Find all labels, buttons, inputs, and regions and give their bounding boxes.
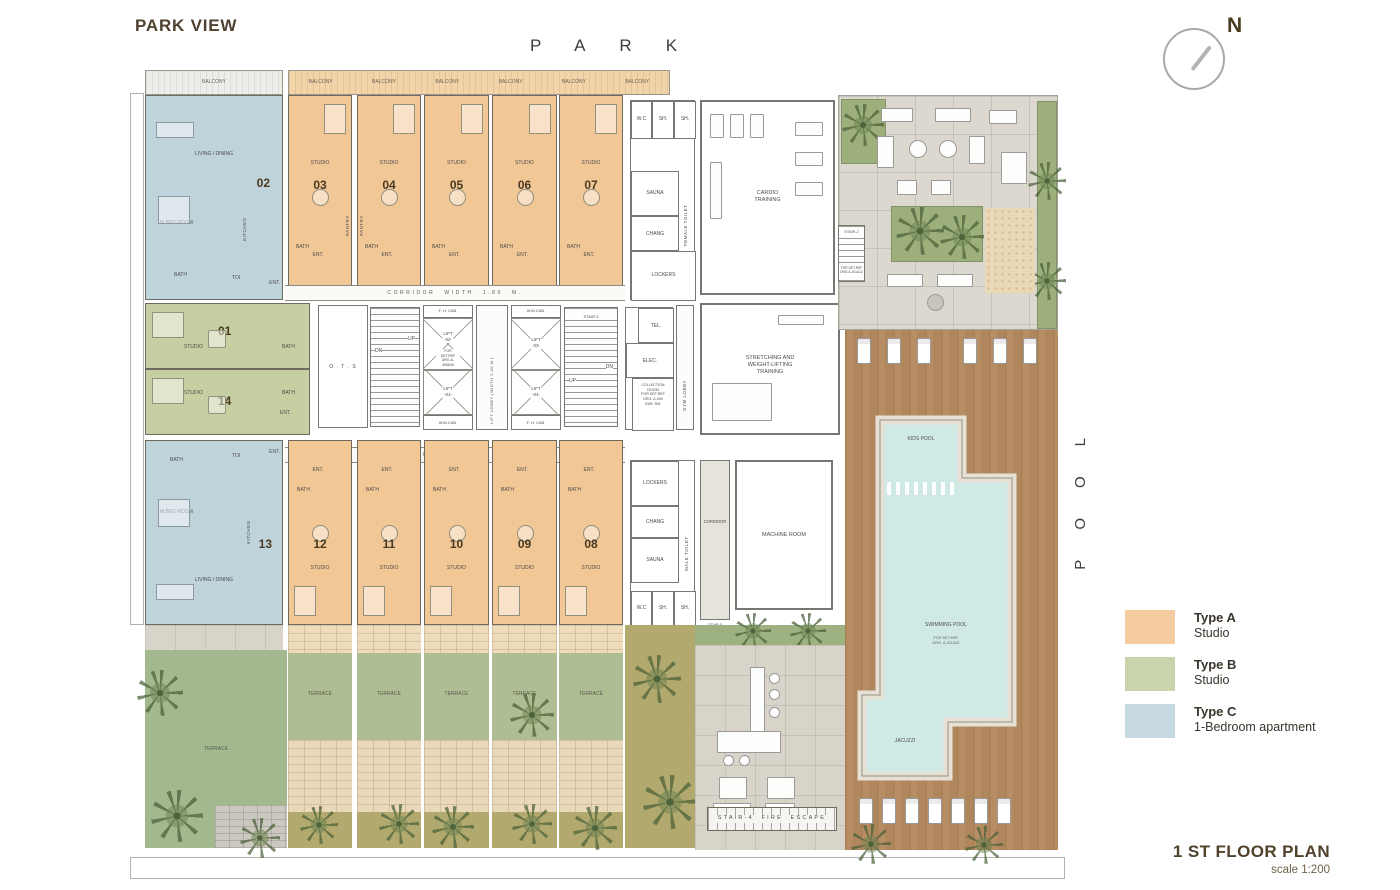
- palm-tree: [633, 655, 681, 703]
- courtyard: STAIR-4 FIRE ESCAPE: [695, 625, 845, 850]
- bath-label: BATH: [567, 244, 580, 251]
- lounger: [859, 798, 873, 824]
- drawing-scale: scale 1:200: [1075, 864, 1330, 876]
- unit-number: 14: [218, 394, 231, 408]
- bar-stool: [739, 755, 750, 766]
- terrace-label: TERRACE: [357, 691, 421, 698]
- balcony-label: BALCONY: [562, 79, 586, 86]
- balcony-label: BALCONY: [625, 79, 649, 86]
- outdoor-sofa: [881, 108, 913, 122]
- unit-number: 09: [493, 537, 556, 551]
- ent-label: ENT.: [517, 252, 528, 259]
- wc-label: W.C: [632, 605, 651, 612]
- machine-room-label: MACHINE ROOM: [737, 532, 831, 539]
- outdoor-seat: [887, 274, 923, 287]
- legend-type-desc: Studio: [1194, 626, 1236, 640]
- wc-room: W.C: [631, 591, 652, 626]
- outdoor-seat: [931, 180, 951, 195]
- planter: [891, 206, 983, 262]
- wc-label: W.C: [632, 116, 651, 123]
- lounger: [928, 798, 942, 824]
- legend-swatch-type-c: [1125, 704, 1175, 738]
- bedroom-label: M.BED ROOM: [160, 509, 193, 516]
- cardio-training-room: CARDIO TRAINING: [700, 100, 835, 295]
- legend-type-desc: Studio: [1194, 673, 1236, 687]
- palm-tree: [851, 824, 891, 864]
- stair-1: DN UP: [370, 307, 420, 427]
- shower-label: SH.: [653, 116, 673, 123]
- palm-tree: [735, 613, 771, 649]
- wellness-block-bottom: LOCKERS CHANG SAUNA MALE TOILET W.C SH. …: [630, 460, 695, 625]
- ent-label: ENT.: [449, 467, 460, 474]
- planting-band: [357, 812, 421, 848]
- room-label: STUDIO: [560, 160, 622, 167]
- balcony-label: BALCONY: [499, 79, 523, 86]
- corridor-label: CORRIDOR: [701, 519, 729, 524]
- shower-room: SH.: [674, 101, 696, 139]
- up-label: UP: [569, 378, 576, 385]
- bath-label: BATH: [501, 487, 514, 494]
- ent-label: ENT.: [382, 252, 393, 259]
- page-title: PARK VIEW: [135, 16, 237, 36]
- terrace-label: TERRACE: [145, 746, 287, 753]
- planting-block: [625, 625, 695, 848]
- bath-label: BATH: [174, 272, 187, 279]
- terrace-top-right: [838, 95, 1058, 330]
- bath-label: BATH: [433, 487, 446, 494]
- unit-number: 07: [560, 178, 622, 192]
- fhcab-label: F. H. CAB.: [512, 420, 560, 425]
- changing-room: CHANG: [631, 216, 679, 251]
- gym-equipment: [750, 114, 764, 138]
- outdoor-sofa: [1001, 152, 1027, 184]
- room-label: STUDIO: [358, 160, 420, 167]
- planting-band: [424, 812, 489, 848]
- terrace-lawn: TERRACE: [357, 653, 421, 740]
- planting-band: [288, 812, 352, 848]
- room-label: STUDIO: [289, 160, 351, 167]
- unit-number: 06: [493, 178, 556, 192]
- park-label: PARK: [530, 36, 711, 56]
- unit-number: 12: [289, 537, 351, 551]
- paving-strip: [145, 625, 283, 650]
- room-label: STUDIO: [358, 565, 420, 572]
- unit-number: 01: [218, 324, 231, 338]
- terrace-lawn: TERRACE: [424, 653, 489, 740]
- lift-label: LIFT -01-: [442, 386, 453, 398]
- stair2-label: STAIR-2: [839, 230, 864, 235]
- male-toilet-label: MALE TOILET: [684, 486, 689, 571]
- terrace-access: [492, 625, 557, 653]
- legend-type-name: Type C: [1194, 704, 1316, 720]
- pool-shape: [845, 330, 1058, 850]
- outdoor-chair: [939, 140, 957, 158]
- room-label: STUDIO: [425, 565, 488, 572]
- ent-label: ENT.: [517, 467, 528, 474]
- wmcab-label: W.M.CAB.: [424, 420, 472, 425]
- palm-tree: [512, 804, 552, 844]
- bath-label: BATH: [432, 244, 445, 251]
- lift-label: LIFT -04-: [530, 386, 541, 398]
- palm-tree: [510, 693, 554, 737]
- bedroom-label: M.BED ROOM: [160, 220, 193, 227]
- unit-01: STUDIO 01 BATH: [145, 303, 310, 369]
- bath-label: BATH: [282, 344, 295, 351]
- balcony-unit02: BALCONY: [145, 70, 283, 95]
- terrace-unit: TERRACE: [424, 625, 489, 848]
- pool-side-label: POOL: [1072, 408, 1089, 570]
- bath-label: BATH: [282, 390, 295, 397]
- stair2-note: FOR DET.REF DRG.A-411&12: [839, 266, 864, 275]
- toi-label: TOI: [232, 453, 240, 460]
- palm-tree: [573, 806, 617, 850]
- stair4-label: STAIR-4 FIRE ESCAPE: [715, 815, 829, 822]
- ent-label: ENT.: [584, 252, 595, 259]
- kitchen-label: KITCHEN: [242, 196, 247, 241]
- shower-label: SH.: [653, 605, 673, 612]
- terrace-access: [357, 625, 421, 653]
- outdoor-seat: [937, 274, 973, 287]
- unit-number: 05: [425, 178, 488, 192]
- building-edge-left: [130, 93, 144, 625]
- unit-08: ENT. BATH 08 STUDIO: [559, 440, 623, 625]
- lift-detail-note: FOR DET.REF DRG.A-405&06: [436, 349, 460, 367]
- stair3-label: STAIR-3: [565, 314, 617, 319]
- bar-stool: [769, 673, 780, 684]
- shower-label: SH.: [675, 605, 695, 612]
- balcony-label: BALCONY: [435, 79, 459, 86]
- service-rooms: TEL. ELEC. COLLECTION ROOM FOR DET.REF D…: [625, 307, 673, 430]
- palm-tree: [896, 207, 944, 255]
- legend-type-name: Type A: [1194, 610, 1236, 626]
- north-label: N: [1227, 14, 1242, 38]
- dn-label: DN: [375, 348, 382, 355]
- drawing-title: 1 ST FLOOR PLAN: [1075, 842, 1330, 862]
- stair-4-fire-escape: STAIR-4 FIRE ESCAPE: [707, 807, 837, 831]
- terrace-pavers: [357, 740, 421, 812]
- unit-number: 04: [358, 178, 420, 192]
- corridor-strip: CORRIDOR: [700, 460, 730, 620]
- lockers-room: LOCKERS: [631, 461, 679, 506]
- palm-tree: [240, 818, 280, 858]
- room-label: STUDIO: [493, 565, 556, 572]
- tel-room: TEL.: [638, 308, 674, 343]
- unit-number: 03: [289, 178, 351, 192]
- terrace-unit: TERRACE: [492, 625, 557, 848]
- gym-equipment: [778, 315, 824, 325]
- room-label: STUDIO: [425, 160, 488, 167]
- gym-mat: [712, 383, 772, 421]
- bar-stool: [769, 689, 780, 700]
- dn-label: DN: [606, 364, 613, 371]
- drawing-title-block: 1 ST FLOOR PLAN scale 1:200: [1075, 842, 1330, 876]
- palm-tree: [151, 790, 203, 842]
- elec-label: ELEC.: [627, 358, 673, 365]
- room-label: STUDIO: [493, 160, 556, 167]
- swimming-pool-label: SWIMMING POOL: [880, 622, 1012, 629]
- outdoor-sofa: [877, 136, 894, 168]
- unit-number: 13: [259, 537, 272, 551]
- north-arrow-icon: [1163, 28, 1225, 90]
- bar-stool: [769, 707, 780, 718]
- floor-plan: BALCONY BALCONY BALCONY BALCONY BALCONY …: [130, 65, 1070, 885]
- terrace-pavers: [559, 740, 623, 812]
- ent-label: ENT.: [280, 410, 291, 417]
- unit-14: STUDIO 14 BATH ENT.: [145, 369, 310, 435]
- lounger: [997, 798, 1011, 824]
- palm-tree: [137, 670, 183, 716]
- living-label: LIVING / DINING: [146, 151, 282, 158]
- palm-tree: [432, 806, 474, 848]
- gym-equipment: [710, 114, 724, 138]
- machine-room: MACHINE ROOM: [735, 460, 833, 610]
- stair-3: STAIR-3 UP DN: [564, 307, 618, 427]
- bath-label: BATH: [170, 457, 183, 464]
- unit-09: ENT. BATH 09 STUDIO: [492, 440, 557, 625]
- unit-04: STUDIO 04 BATH ENT. PANTRY: [357, 95, 421, 300]
- collection-label: COLLECTION ROOM FOR DET.REF DRG. A-409 G…: [633, 383, 673, 406]
- terrace-unit: TERRACE: [288, 625, 352, 848]
- balcony-strip: BALCONY BALCONY BALCONY BALCONY BALCONY …: [288, 70, 670, 95]
- bar-counter: [750, 667, 765, 733]
- outdoor-chair: [909, 140, 927, 158]
- unit-03: STUDIO 03 BATH ENT. PANTRY: [288, 95, 352, 300]
- lockers-label: LOCKERS: [632, 480, 678, 487]
- ent-label: ENT.: [313, 467, 324, 474]
- changing-room: CHANG: [631, 506, 679, 538]
- unit-number: 10: [425, 537, 488, 551]
- lift-lobby: LIFT LOBBY (WIDTH 2.40 M.): [476, 305, 508, 430]
- terrace-pavers: [424, 740, 489, 812]
- fire-hose-cabinet: F. H. CAB.: [423, 305, 473, 318]
- wc-room: W.C: [631, 101, 652, 139]
- female-toilet-label: FEMALE TOILET: [683, 156, 688, 246]
- planting-band: [559, 812, 623, 848]
- room-label: STUDIO: [289, 565, 351, 572]
- sauna-label: SAUNA: [632, 557, 678, 564]
- fire-hose-cabinet: F. H. CAB.: [511, 415, 561, 430]
- gym-lobby-label: GYM LOBBY: [682, 331, 687, 411]
- planter: [1037, 101, 1057, 329]
- stair-2: STAIR-2 FOR DET.REF DRG.A-411&12: [838, 225, 865, 282]
- ent-label: ENT.: [269, 280, 280, 287]
- seat: [719, 777, 747, 799]
- lounger: [951, 798, 965, 824]
- balcony-label: BALCONY: [202, 79, 226, 86]
- palm-tree: [643, 775, 697, 829]
- lift-03: LIFT -03-: [511, 318, 561, 370]
- living-label: LIVING / DINING: [146, 577, 282, 584]
- unit-number: 08: [560, 537, 622, 551]
- tel-label: TEL.: [639, 323, 673, 330]
- water-meter-cabinet: W.M.CAB.: [511, 305, 561, 318]
- bath-label: BATH: [500, 244, 513, 251]
- shower-room: SH.: [652, 101, 674, 139]
- chang-label: CHANG: [632, 519, 678, 526]
- sand-patch: [985, 208, 1035, 293]
- unit-12: ENT. BATH 12 STUDIO: [288, 440, 352, 625]
- balcony-label: BALCONY: [309, 79, 333, 86]
- palm-tree: [300, 806, 338, 844]
- ent-label: ENT.: [584, 467, 595, 474]
- unit-11: ENT. BATH 11 STUDIO: [357, 440, 421, 625]
- terrace-access: [559, 625, 623, 653]
- room-label: STUDIO: [184, 344, 203, 351]
- lockers-label: LOCKERS: [632, 272, 695, 279]
- ots-label: O . T . S: [319, 364, 367, 371]
- bath-label: BATH: [296, 244, 309, 251]
- corridor-width-label: CORRIDOR WIDTH 1.80 M.: [387, 290, 522, 297]
- ent-label: ENT.: [449, 252, 460, 259]
- floor-plan-page: PARK VIEW PARK N BALCONY BALCONY BALCONY…: [0, 0, 1400, 890]
- bar-counter: [717, 731, 781, 753]
- gym-equipment: [795, 122, 823, 136]
- terrace-unit: TERRACE: [357, 625, 421, 848]
- outdoor-sofa: [969, 136, 985, 164]
- terrace-access: [288, 625, 352, 653]
- outdoor-sofa: [935, 108, 971, 122]
- terrace-label: TERRACE: [559, 691, 623, 698]
- up-label: UP: [408, 336, 415, 343]
- outdoor-seat: [897, 180, 917, 195]
- kids-pool-label: KIDS POOL: [880, 436, 962, 443]
- bar-stool: [723, 755, 734, 766]
- terrace-lawn: TERRACE: [288, 653, 352, 740]
- terrace-lawn: TERRACE: [559, 653, 623, 740]
- lounger: [974, 798, 988, 824]
- lounger: [905, 798, 919, 824]
- palm-tree: [965, 826, 1003, 864]
- terrace-unit: TERRACE: [559, 625, 623, 848]
- palm-tree: [940, 215, 984, 259]
- unit-05: STUDIO 05 BATH ENT.: [424, 95, 489, 300]
- corridor-top: CORRIDOR WIDTH 1.80 M.: [285, 285, 625, 301]
- garden-left: TERRACE: [145, 650, 287, 848]
- legend: Type A Studio Type B Studio Type C 1-Bed…: [1125, 610, 1365, 751]
- terrace-pavers: [492, 740, 557, 812]
- pantry-label: PANTRY: [359, 208, 364, 236]
- palm-tree: [1028, 162, 1066, 200]
- unit-13: BATH TOI ENT. M.BED ROOM KITCHEN 13 LIVI…: [145, 440, 283, 625]
- stretching-room: STRETCHING AND WEIGHT-LIFTING TRAINING: [700, 303, 840, 435]
- fountain: [927, 294, 944, 311]
- seat: [767, 777, 795, 799]
- unit-06: STUDIO 06 BATH ENT.: [492, 95, 557, 300]
- lift-lobby-label: LIFT LOBBY (WIDTH 2.40 M.): [489, 314, 494, 424]
- bath-label: BATH: [365, 244, 378, 251]
- gym-equipment: [795, 152, 823, 166]
- room-label: STUDIO: [560, 565, 622, 572]
- pantry-label: PANTRY: [345, 208, 350, 236]
- legend-type-desc: 1-Bedroom apartment: [1194, 720, 1316, 734]
- pool-deck: KIDS POOL SWIMMING POOL FOR DET.REF DRG.…: [845, 330, 1058, 850]
- lift-label: LIFT -02-: [442, 331, 453, 343]
- lift-04: LIFT -04-: [511, 370, 561, 415]
- stretching-label: STRETCHING AND WEIGHT-LIFTING TRAINING: [702, 355, 838, 376]
- pool-detail-note: FOR DET.REF DRG. A-411&12: [880, 636, 1012, 646]
- bath-label: BATH: [568, 487, 581, 494]
- unit-10: ENT. BATH 10 STUDIO: [424, 440, 489, 625]
- jacuzzi-label: JACUZZI: [862, 738, 948, 745]
- planting-band: [492, 812, 557, 848]
- lift-01: LIFT -01-: [423, 370, 473, 415]
- legend-item-type-a: Type A Studio: [1125, 610, 1365, 644]
- shower-room: SH.: [652, 591, 674, 626]
- legend-swatch-type-b: [1125, 657, 1175, 691]
- unit-number: 11: [358, 537, 420, 551]
- palm-tree: [379, 804, 419, 844]
- wmcab-label: W.M.CAB.: [512, 308, 560, 313]
- lift-label: LIFT -03-: [530, 337, 541, 349]
- ent-label: ENT.: [382, 467, 393, 474]
- ent-label: ENT.: [313, 252, 324, 259]
- cardio-label: CARDIO TRAINING: [702, 190, 833, 204]
- collection-room: COLLECTION ROOM FOR DET.REF DRG. A-409 G…: [632, 378, 674, 431]
- outdoor-sofa: [989, 110, 1017, 124]
- lounger: [882, 798, 896, 824]
- bath-label: BATH: [297, 487, 310, 494]
- unit-02: LIVING / DINING 02 M.BED ROOM KITCHEN BA…: [145, 95, 283, 300]
- wellness-block-top: W.C SH. SH. SAUNA CHANG LOCKERS FEMALE T…: [630, 100, 695, 300]
- terrace-label: TERRACE: [288, 691, 352, 698]
- terrace-access: [424, 625, 489, 653]
- sauna-room: SAUNA: [631, 538, 679, 583]
- sauna-label: SAUNA: [632, 190, 678, 197]
- gym-equipment: [730, 114, 744, 138]
- gym-lobby: GYM LOBBY: [676, 305, 694, 430]
- legend-item-type-b: Type B Studio: [1125, 657, 1365, 691]
- ots-shaft: O . T . S: [318, 305, 368, 428]
- legend-swatch-type-a: [1125, 610, 1175, 644]
- shower-label: SH.: [675, 116, 695, 123]
- terrace-pavers: [288, 740, 352, 812]
- lockers-room: LOCKERS: [631, 251, 696, 301]
- ent-label: ENT.: [269, 449, 280, 456]
- toi-label: TOI: [232, 275, 240, 282]
- water-meter-cabinet: W.M.CAB.: [423, 415, 473, 430]
- bath-label: BATH: [366, 487, 379, 494]
- kitchen-label: KITCHEN: [246, 499, 251, 544]
- balcony-label: BALCONY: [372, 79, 396, 86]
- palm-tree: [790, 613, 826, 649]
- pool-water: [862, 420, 1012, 776]
- terrace-label: TERRACE: [424, 691, 489, 698]
- chang-label: CHANG: [632, 231, 678, 238]
- legend-type-name: Type B: [1194, 657, 1236, 673]
- elec-room: ELEC.: [626, 343, 674, 378]
- fhcab-label: F. H. CAB.: [424, 308, 472, 313]
- terrace-lawn: TERRACE: [492, 653, 557, 740]
- unit-07: STUDIO 07 BATH ENT.: [559, 95, 623, 300]
- lift-02: LIFT -02- FOR DET.REF DRG.A-405&06: [423, 318, 473, 370]
- building-base-outline: [130, 857, 1065, 879]
- room-label: STUDIO: [184, 390, 203, 397]
- pool-jets: [887, 482, 957, 495]
- shower-room: SH.: [674, 591, 696, 626]
- legend-item-type-c: Type C 1-Bedroom apartment: [1125, 704, 1365, 738]
- grass-strip: [695, 625, 845, 645]
- sauna-room: SAUNA: [631, 171, 679, 216]
- unit-number: 02: [257, 176, 270, 190]
